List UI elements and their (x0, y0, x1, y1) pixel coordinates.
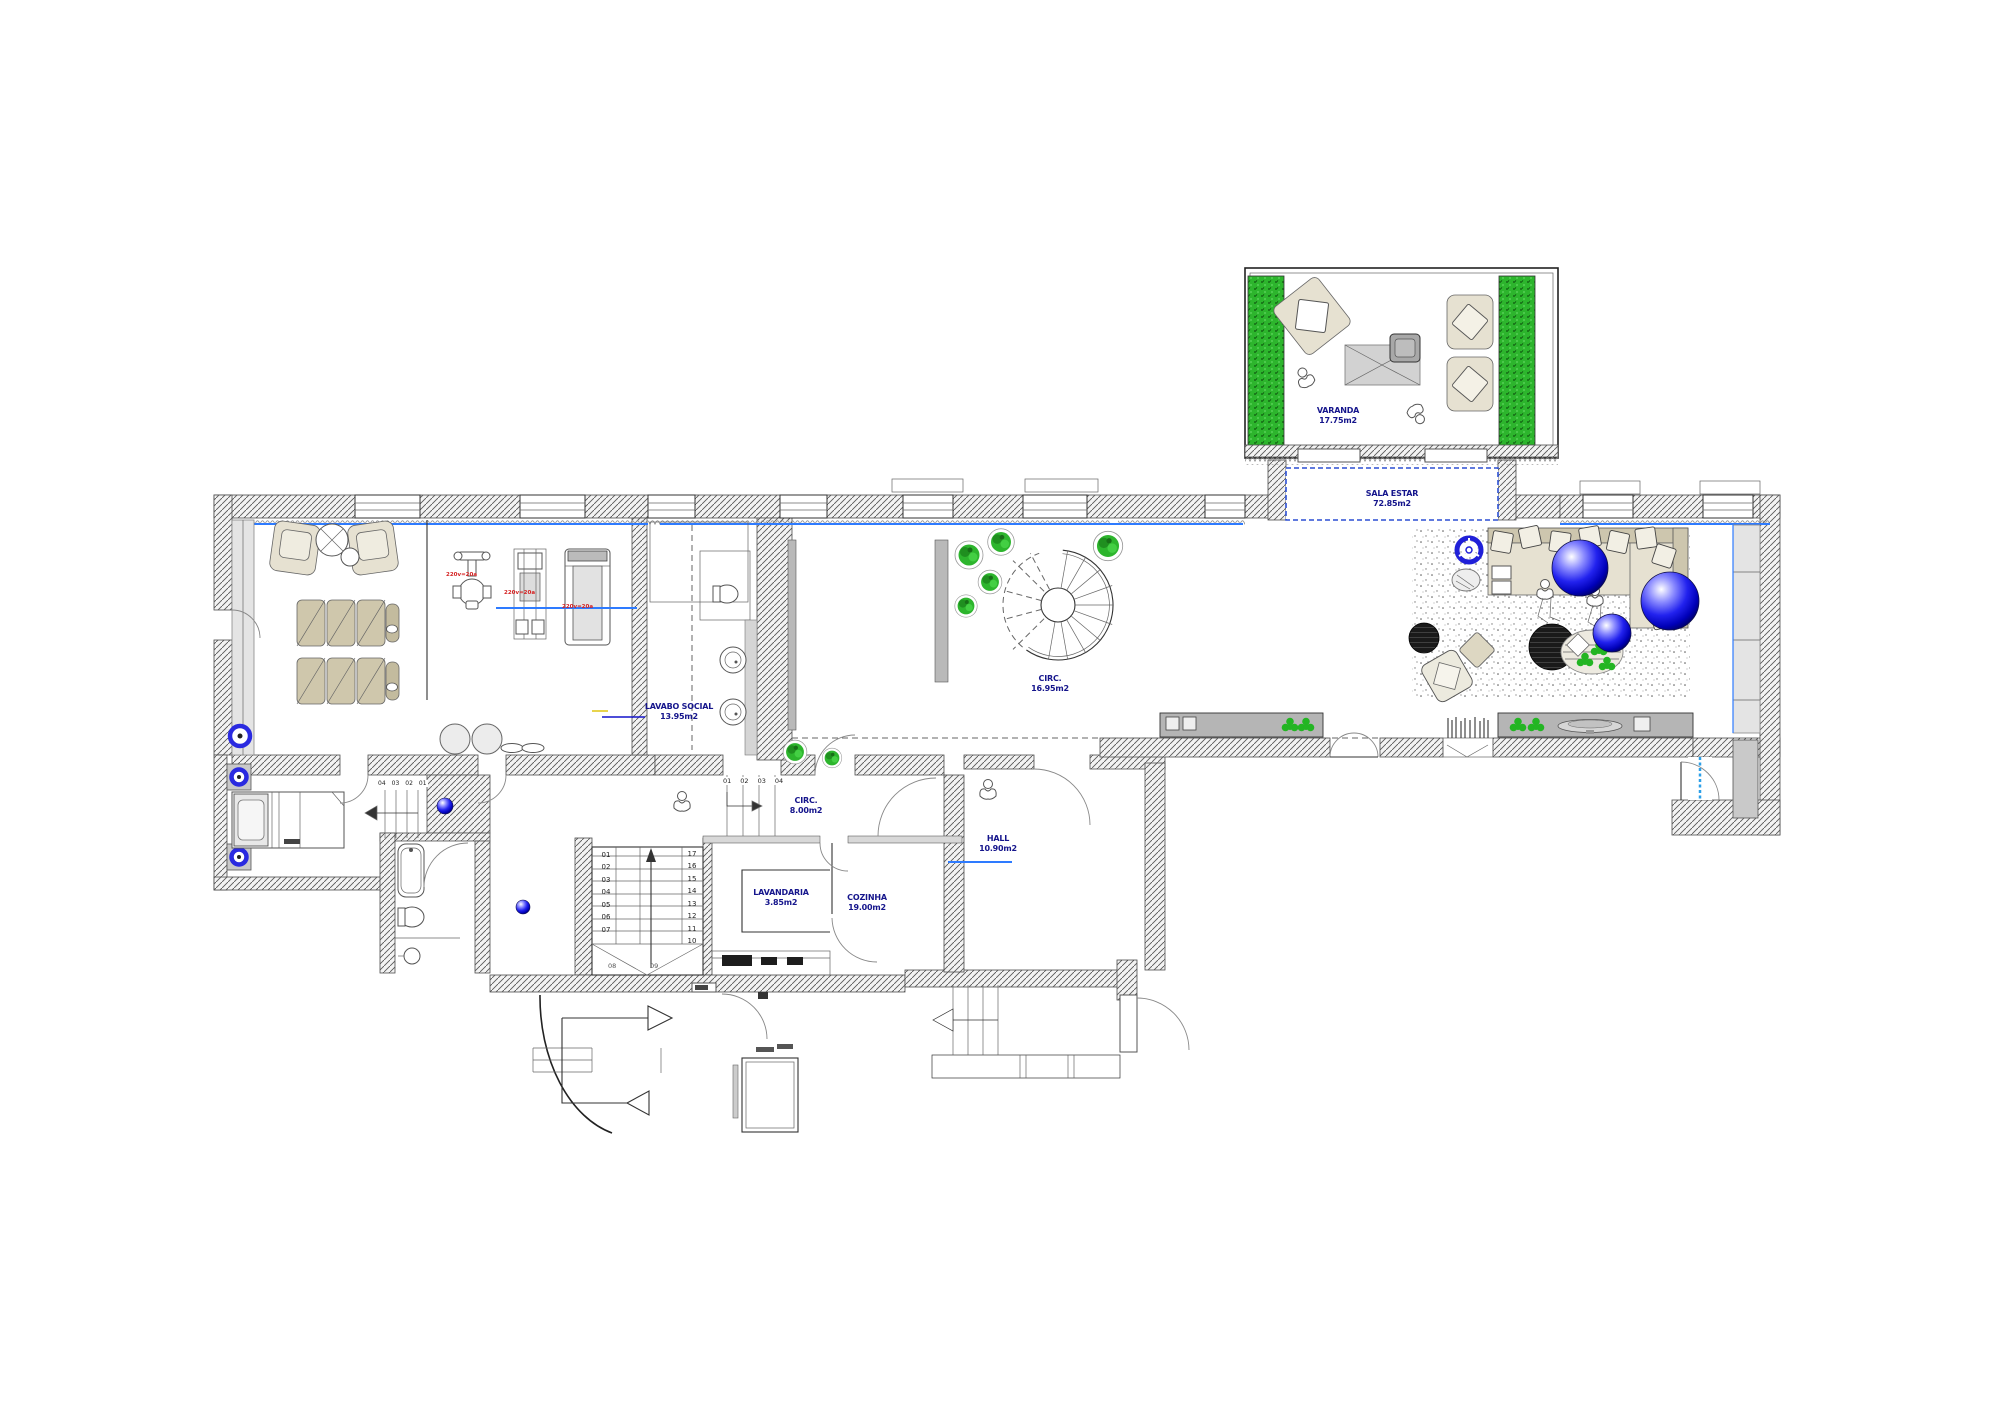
room-label-circ: CIRC. 16.95m2 (1031, 674, 1069, 693)
planter-left (1248, 276, 1284, 448)
person-figure (1293, 365, 1316, 390)
floor-plan-canvas: VARANDA 17.75m2 SALA ESTAR 72.85m2 CIRC.… (0, 0, 2000, 1414)
veranda-armchair (1447, 295, 1493, 349)
stair-number: 04 (377, 780, 387, 787)
stair-number: 04 (597, 886, 615, 898)
plant (988, 529, 1015, 556)
tall-wardrobe (1733, 525, 1760, 733)
exercise-ball (440, 724, 470, 754)
double-door (1330, 733, 1378, 757)
plant (783, 740, 807, 764)
stair-number: 13 (684, 898, 700, 910)
stair-number: 01 (597, 849, 615, 861)
exercise-ball (472, 724, 502, 754)
stair-numbers-right: 1716151413121110 (684, 848, 700, 948)
oval-side-table (1452, 569, 1480, 591)
veranda (1245, 268, 1558, 465)
sink (720, 699, 746, 725)
room-label-circ2: CIRC. 8.00m2 (790, 796, 822, 815)
room-area: 10.90m2 (979, 844, 1017, 854)
exterior-steps (932, 985, 1120, 1078)
person-figure (980, 780, 996, 800)
circulation-area (783, 529, 1408, 775)
room-area: 19.00m2 (847, 903, 887, 913)
room-area: 16.95m2 (1031, 684, 1069, 694)
room-area: 8.00m2 (790, 806, 822, 816)
room-name: SALA ESTAR (1366, 489, 1418, 499)
armchair (347, 520, 400, 576)
light-sphere (437, 798, 453, 814)
exterior-door (1120, 995, 1189, 1052)
equipment-power-label: 220v=20a (446, 572, 477, 578)
plant (1093, 531, 1122, 560)
veranda-table (1390, 334, 1420, 362)
massage-table (297, 658, 399, 704)
stair-number: 02 (739, 777, 749, 785)
equipment-power-label: 220v=20a (562, 604, 593, 610)
light-sphere (516, 900, 530, 914)
stair-number: 02 (597, 861, 615, 873)
room-label-cozinha: COZINHA 19.00m2 (847, 893, 887, 912)
room-name: LAVABO SOCIAL (645, 702, 713, 712)
entry-door (722, 992, 768, 1039)
veranda-armchair (1447, 357, 1493, 411)
room-area: 13.95m2 (645, 712, 713, 722)
bedroom-step-numbers: 04030201 (377, 780, 428, 787)
side-unit (1492, 566, 1511, 579)
blue-sphere (1593, 614, 1631, 652)
room-area: 3.85m2 (753, 898, 808, 908)
stair-number: 11 (684, 923, 700, 935)
stair-number: 03 (391, 780, 401, 787)
stair-number: 14 (684, 885, 700, 897)
stair-number: 04 (774, 777, 784, 785)
room-label-sala-estar: SALA ESTAR 72.85m2 (1366, 489, 1418, 508)
stair-number-landing: 09 (650, 962, 658, 970)
gym-room (427, 520, 645, 754)
appliance-box (761, 957, 777, 965)
armchair (269, 520, 322, 576)
stair-number: 07 (597, 924, 615, 936)
appliance-box (722, 955, 752, 966)
room-area: 17.75m2 (1317, 416, 1359, 426)
planter-right (1499, 276, 1535, 448)
room-label-hall: HALL 10.90m2 (979, 834, 1017, 853)
person-figure (674, 792, 690, 812)
spiral-staircase (1003, 550, 1113, 660)
person-figure (1405, 402, 1429, 427)
treadmill (565, 549, 610, 645)
winder-step-numbers: 01020304 (722, 777, 784, 785)
stair-number: 12 (684, 910, 700, 922)
stair-number: 01 (722, 777, 732, 785)
bedroom-steps (365, 790, 418, 838)
stair-number: 06 (597, 911, 615, 923)
massage-room (230, 520, 399, 755)
massage-table (297, 600, 399, 646)
sink (404, 948, 420, 964)
room-label-lavabo: LAVABO SOCIAL 13.95m2 (645, 702, 713, 721)
plant (978, 570, 1002, 594)
living-room (1160, 525, 1760, 818)
stair-number: 16 (684, 860, 700, 872)
shag-pouf (1409, 623, 1439, 653)
room-name: CIRC. (790, 796, 822, 806)
window (355, 495, 420, 518)
stair-number-landing: 08 (608, 962, 616, 970)
stair-number: 01 (418, 780, 428, 787)
appliance-box (787, 957, 803, 965)
stair-number: 15 (684, 873, 700, 885)
stair-number: 03 (597, 874, 615, 886)
stair-number: 03 (757, 777, 767, 785)
plant (822, 748, 842, 768)
stair-number: 17 (684, 848, 700, 860)
stair-number: 05 (597, 899, 615, 911)
bookshelf (1443, 717, 1493, 757)
sink (720, 647, 746, 673)
plant (955, 541, 983, 569)
door-swing (878, 778, 936, 836)
equipment-power-label: 220v=20a (504, 590, 535, 596)
room-name: LAVANDARIA (753, 888, 808, 898)
room-name: HALL (979, 834, 1017, 844)
blue-sphere (1641, 572, 1699, 630)
stair-numbers-left: 01020304050607 (597, 849, 615, 936)
console-sideboard (1160, 713, 1693, 737)
room-label-varanda: VARANDA 17.75m2 (1317, 406, 1359, 425)
plant (955, 595, 977, 617)
room-name: CIRC. (1031, 674, 1069, 684)
room-area: 72.85m2 (1366, 499, 1418, 509)
blue-sphere (1552, 540, 1608, 596)
room-name: COZINHA (847, 893, 887, 903)
bed (232, 792, 344, 848)
room-label-lavandaria: LAVANDARIA 3.85m2 (753, 888, 808, 907)
stair-number: 02 (404, 780, 414, 787)
stair-number: 10 (684, 935, 700, 947)
bathroom (395, 843, 468, 964)
room-name: VARANDA (1317, 406, 1359, 416)
exercise-bike (453, 552, 491, 609)
floor-plan-drawing (0, 0, 2000, 1414)
entry-cabinet (733, 1044, 798, 1132)
